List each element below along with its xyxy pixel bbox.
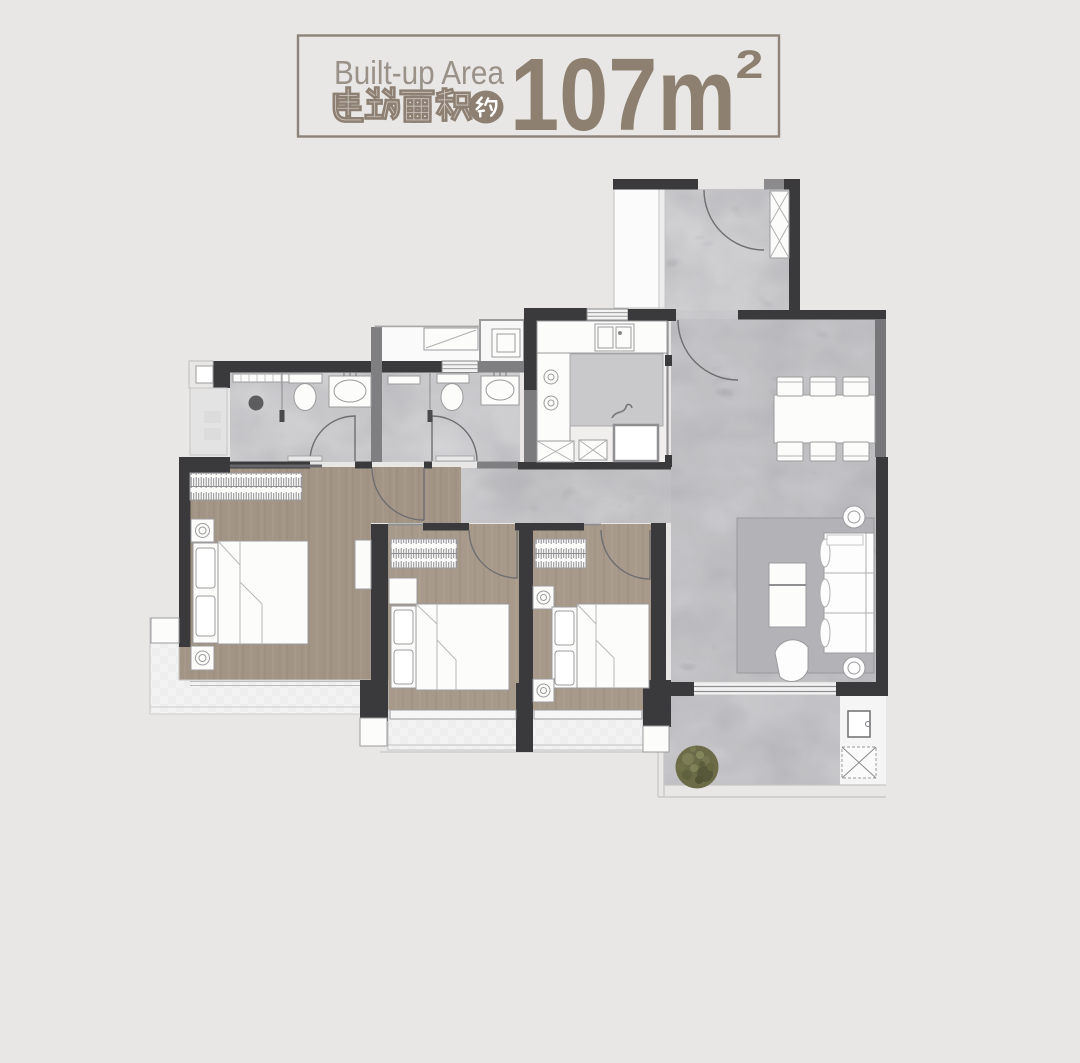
svg-text:107m: 107m <box>510 38 736 153</box>
svg-text:Built-up Area: Built-up Area <box>334 55 504 92</box>
svg-text:2: 2 <box>736 42 764 87</box>
